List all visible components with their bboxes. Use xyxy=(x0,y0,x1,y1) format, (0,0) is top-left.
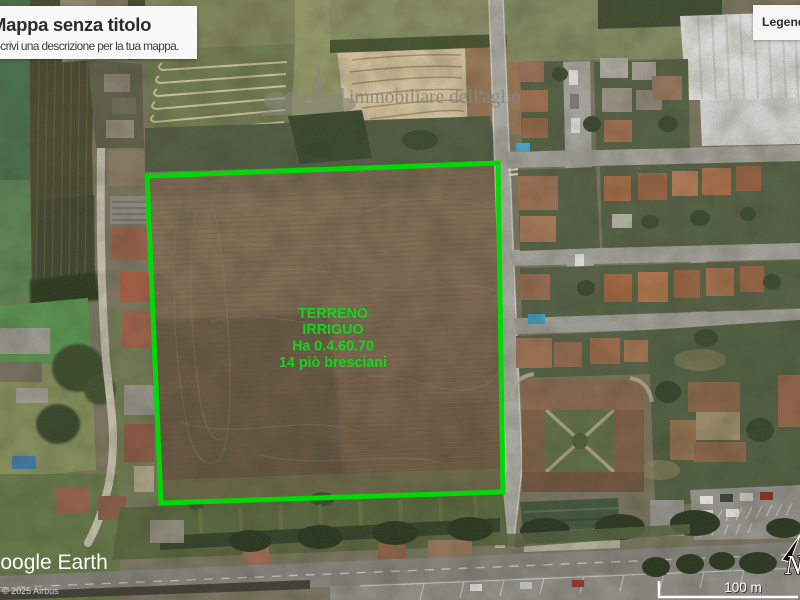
svg-text:Ha 0.4.60.70: Ha 0.4.60.70 xyxy=(292,339,374,355)
svg-text:immobiliare dell'aglio: immobiliare dell'aglio xyxy=(349,87,521,108)
svg-text:100 m: 100 m xyxy=(724,580,762,595)
svg-text:14 piò bresciani: 14 piò bresciani xyxy=(279,355,387,371)
svg-text:N: N xyxy=(784,550,800,580)
svg-text:Google Earth: Google Earth xyxy=(0,551,108,574)
svg-text:IRRIGUO: IRRIGUO xyxy=(302,322,363,338)
svg-text:© 2025 Airbus: © 2025 Airbus xyxy=(2,586,59,596)
svg-text:TERRENO: TERRENO xyxy=(298,306,368,322)
